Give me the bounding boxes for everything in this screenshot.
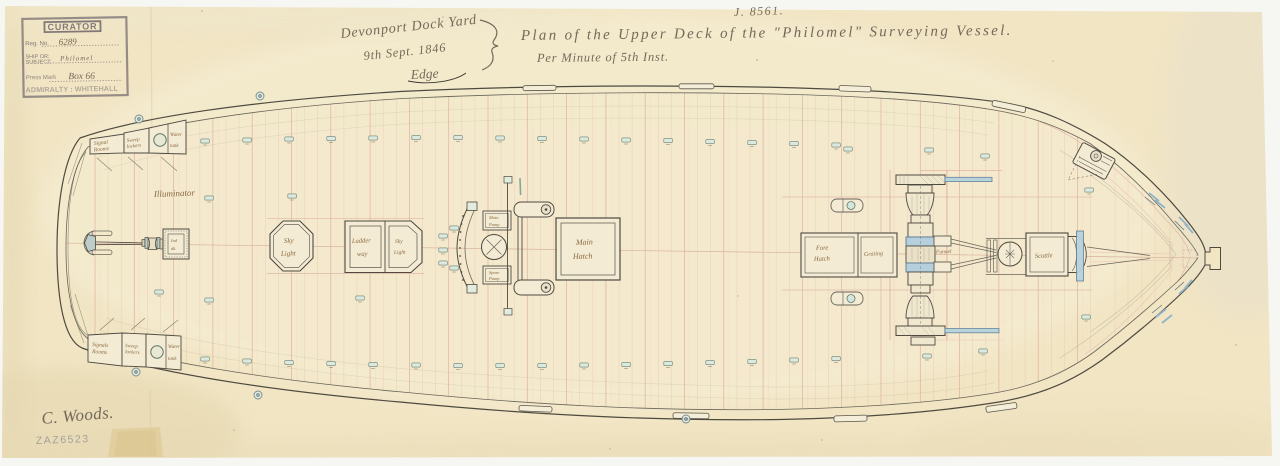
svg-text:Illuminator: Illuminator	[153, 188, 196, 199]
svg-text:Spare: Spare	[489, 270, 499, 275]
svg-text:Ladder: Ladder	[351, 237, 371, 245]
svg-text:Scuttle: Scuttle	[1035, 252, 1053, 260]
svg-text:Light: Light	[393, 250, 406, 256]
svg-text:Grating: Grating	[864, 251, 883, 258]
svg-text:Funnel: Funnel	[935, 249, 952, 256]
svg-text:ZAZ6523: ZAZ6523	[36, 433, 90, 447]
svg-text:Philomel: Philomel	[59, 54, 93, 63]
svg-text:Sweep: Sweep	[125, 344, 139, 350]
svg-text:Per Minute of 5th Inst.: Per Minute of 5th Inst.	[536, 50, 669, 65]
svg-text:J. 8561.: J. 8561.	[734, 3, 785, 19]
svg-text:way: way	[357, 251, 368, 258]
svg-text:6289: 6289	[59, 36, 78, 46]
svg-text:Rooms: Rooms	[91, 349, 107, 356]
svg-text:Ind: Ind	[170, 238, 178, 243]
svg-text:Edge: Edge	[409, 66, 438, 82]
svg-text:Press Mark: Press Mark	[26, 75, 57, 82]
svg-text:Hatch: Hatch	[813, 255, 830, 263]
svg-text:Water: Water	[168, 345, 180, 350]
svg-text:Signals: Signals	[92, 342, 109, 349]
svg-text:Sky: Sky	[284, 236, 295, 245]
svg-text:dk.: dk.	[171, 246, 176, 251]
svg-text:Main: Main	[488, 215, 499, 220]
svg-text:Pump: Pump	[488, 222, 500, 227]
svg-text:Box 66: Box 66	[68, 72, 95, 82]
svg-text:Fore: Fore	[815, 245, 829, 252]
svg-text:Light: Light	[280, 249, 297, 258]
svg-text:Hatch: Hatch	[572, 251, 593, 261]
svg-text:Water: Water	[170, 133, 182, 138]
svg-text:lockers: lockers	[125, 350, 140, 356]
svg-text:Main: Main	[575, 237, 593, 247]
svg-text:ADMIRALTY : WHITEHALL: ADMIRALTY : WHITEHALL	[25, 84, 118, 95]
svg-text:tank: tank	[168, 357, 177, 362]
svg-text:Sky: Sky	[395, 239, 403, 245]
svg-text:Pump: Pump	[488, 276, 500, 281]
svg-text:CURATOR: CURATOR	[48, 21, 98, 32]
svg-text:tank: tank	[170, 144, 179, 149]
